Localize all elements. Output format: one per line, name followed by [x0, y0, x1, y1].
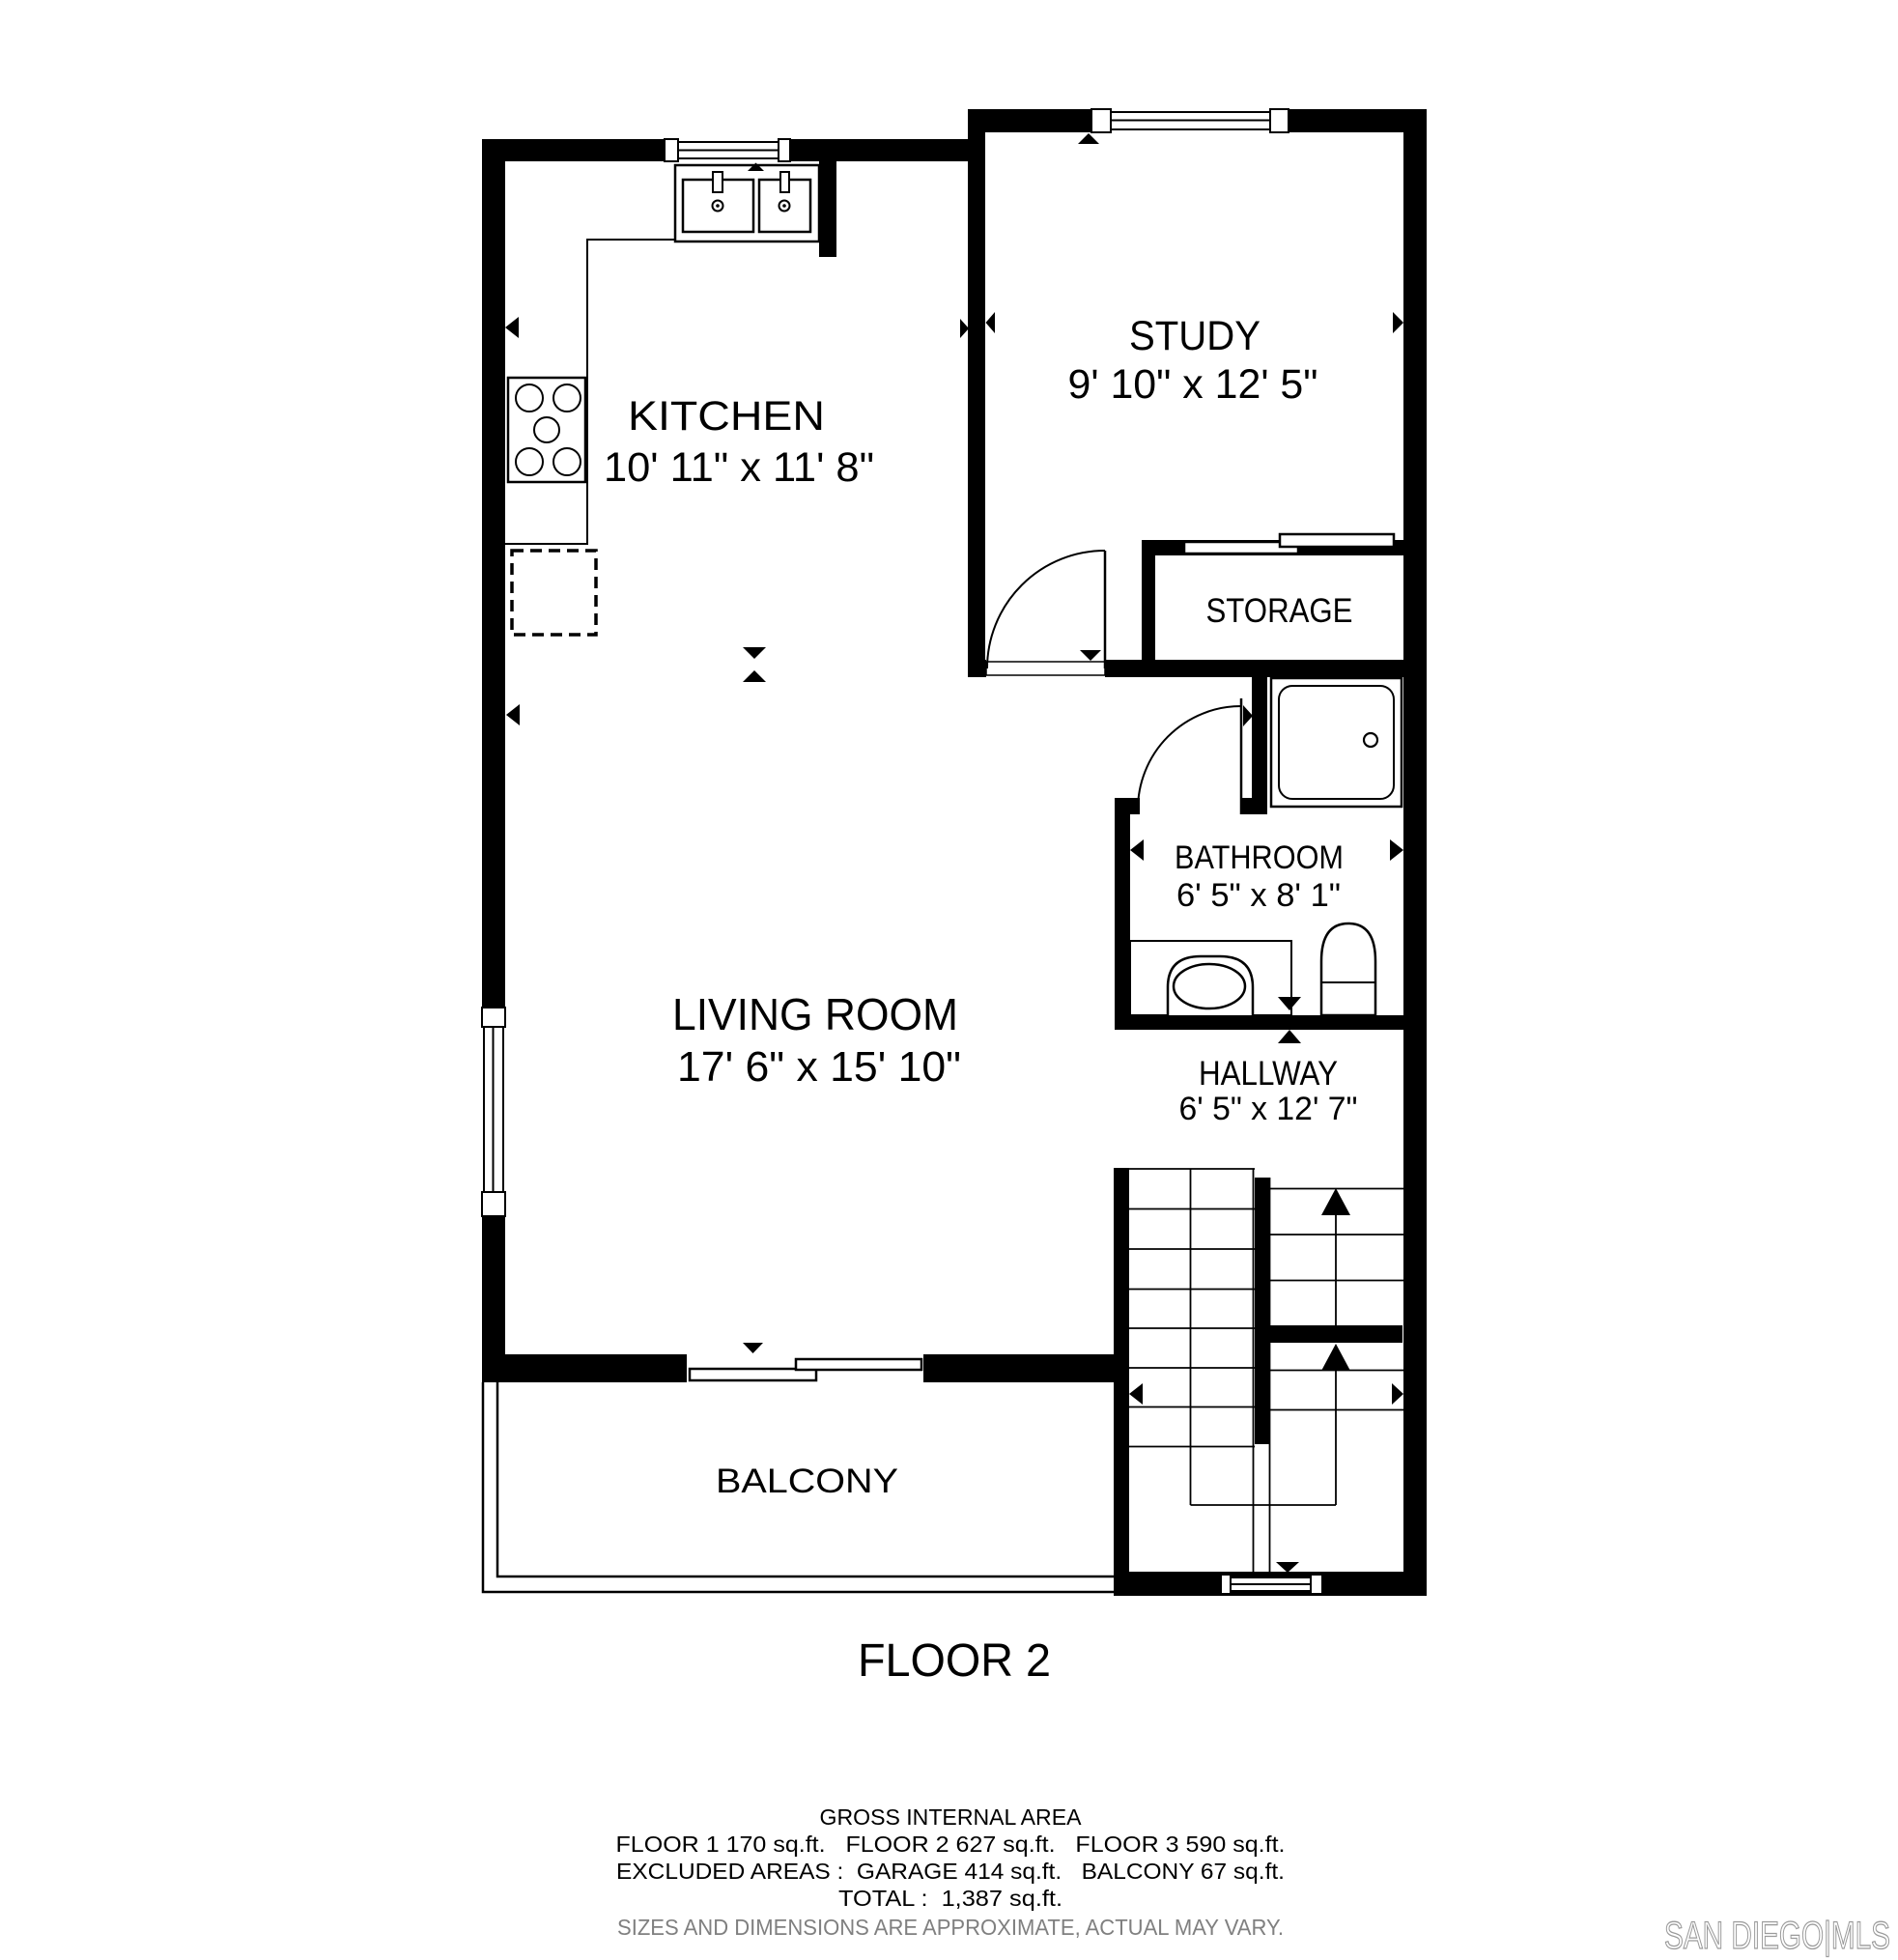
svg-text:GROSS INTERNAL AREA: GROSS INTERNAL AREA — [820, 1804, 1083, 1830]
svg-text:HALLWAY: HALLWAY — [1199, 1055, 1338, 1093]
svg-text:FLOOR 1 170 sq.ft. FLOOR 2 6: FLOOR 1 170 sq.ft. FLOOR 2 627 sq.ft. FL… — [616, 1832, 1286, 1857]
svg-text:17' 6" x 15' 10": 17' 6" x 15' 10" — [677, 1043, 961, 1091]
svg-text:FLOOR 2: FLOOR 2 — [858, 1635, 1051, 1687]
svg-text:STORAGE: STORAGE — [1206, 592, 1353, 630]
svg-text:6' 5" x 12' 7": 6' 5" x 12' 7" — [1179, 1091, 1358, 1127]
svg-text:STUDY: STUDY — [1129, 313, 1261, 359]
svg-text:6' 5" x 8' 1": 6' 5" x 8' 1" — [1176, 877, 1341, 914]
svg-text:TOTAL : 1,387 sq.ft.: TOTAL : 1,387 sq.ft. — [838, 1886, 1062, 1911]
svg-text:10' 11" x 11' 8": 10' 11" x 11' 8" — [604, 444, 874, 491]
svg-text:SAN DIEGO|MLS: SAN DIEGO|MLS — [1664, 1915, 1890, 1957]
svg-text:BALCONY: BALCONY — [716, 1463, 898, 1500]
svg-text:BATHROOM: BATHROOM — [1175, 839, 1344, 876]
svg-text:LIVING ROOM: LIVING ROOM — [672, 989, 958, 1039]
svg-text:9' 10" x 12' 5": 9' 10" x 12' 5" — [1068, 361, 1318, 408]
svg-text:SIZES AND DIMENSIONS ARE APPRO: SIZES AND DIMENSIONS ARE APPROXIMATE, AC… — [617, 1915, 1284, 1940]
svg-text:KITCHEN: KITCHEN — [628, 393, 825, 440]
svg-text:EXCLUDED AREAS : GARAGE 414 s: EXCLUDED AREAS : GARAGE 414 sq.ft. BALCO… — [616, 1859, 1285, 1884]
